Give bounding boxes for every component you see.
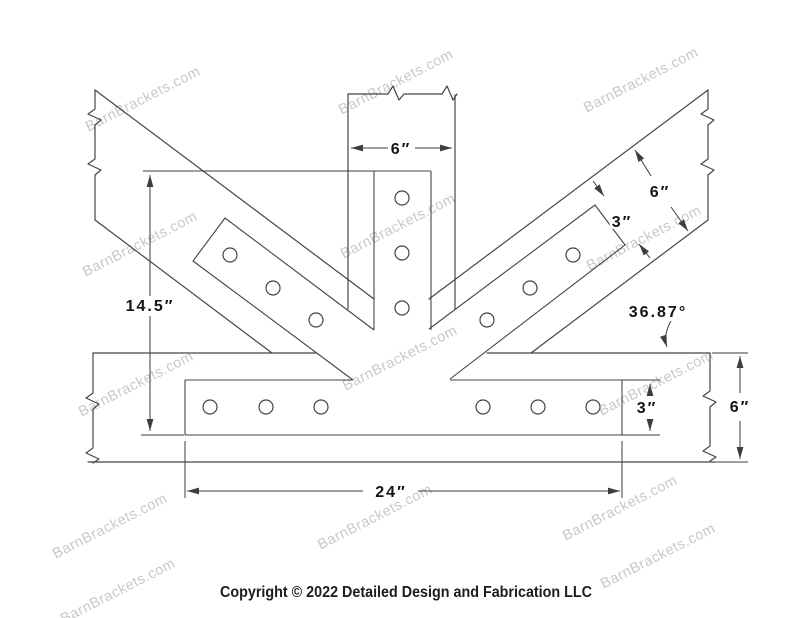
bolt-hole	[395, 246, 409, 260]
bolt-hole	[531, 400, 545, 414]
copyright-text: Copyright © 2022 Detailed Design and Fab…	[220, 584, 592, 601]
dim-label-right-diagonal-plate-width: 3″	[612, 214, 633, 231]
bolt-hole	[259, 400, 273, 414]
drawing-canvas: BarnBrackets.com BarnBrackets.com BarnBr…	[0, 0, 800, 618]
dim-label-angle: 36.87°	[629, 304, 687, 321]
bolt-hole	[266, 281, 280, 295]
bolt-hole	[566, 248, 580, 262]
bolt-hole	[523, 281, 537, 295]
dim-label-vertical-member-width: 6″	[391, 141, 412, 158]
bolt-hole	[309, 313, 323, 327]
bolt-hole	[395, 301, 409, 315]
bolt-hole	[314, 400, 328, 414]
dim-label-bottom-plate-length: 24″	[375, 484, 406, 501]
bolt-hole	[480, 313, 494, 327]
bolt-hole	[395, 191, 409, 205]
dim-label-bottom-member-height: 6″	[730, 399, 751, 416]
bolt-hole	[203, 400, 217, 414]
bolt-hole	[586, 400, 600, 414]
bolt-hole	[476, 400, 490, 414]
dim-label-bottom-plate-height: 3″	[637, 400, 658, 417]
bracket-drawing-page: BarnBrackets.com BarnBrackets.com BarnBr…	[0, 0, 800, 618]
dim-label-left-height: 14.5″	[126, 298, 175, 315]
bolt-hole	[223, 248, 237, 262]
dim-label-right-diagonal-width: 6″	[650, 184, 671, 201]
